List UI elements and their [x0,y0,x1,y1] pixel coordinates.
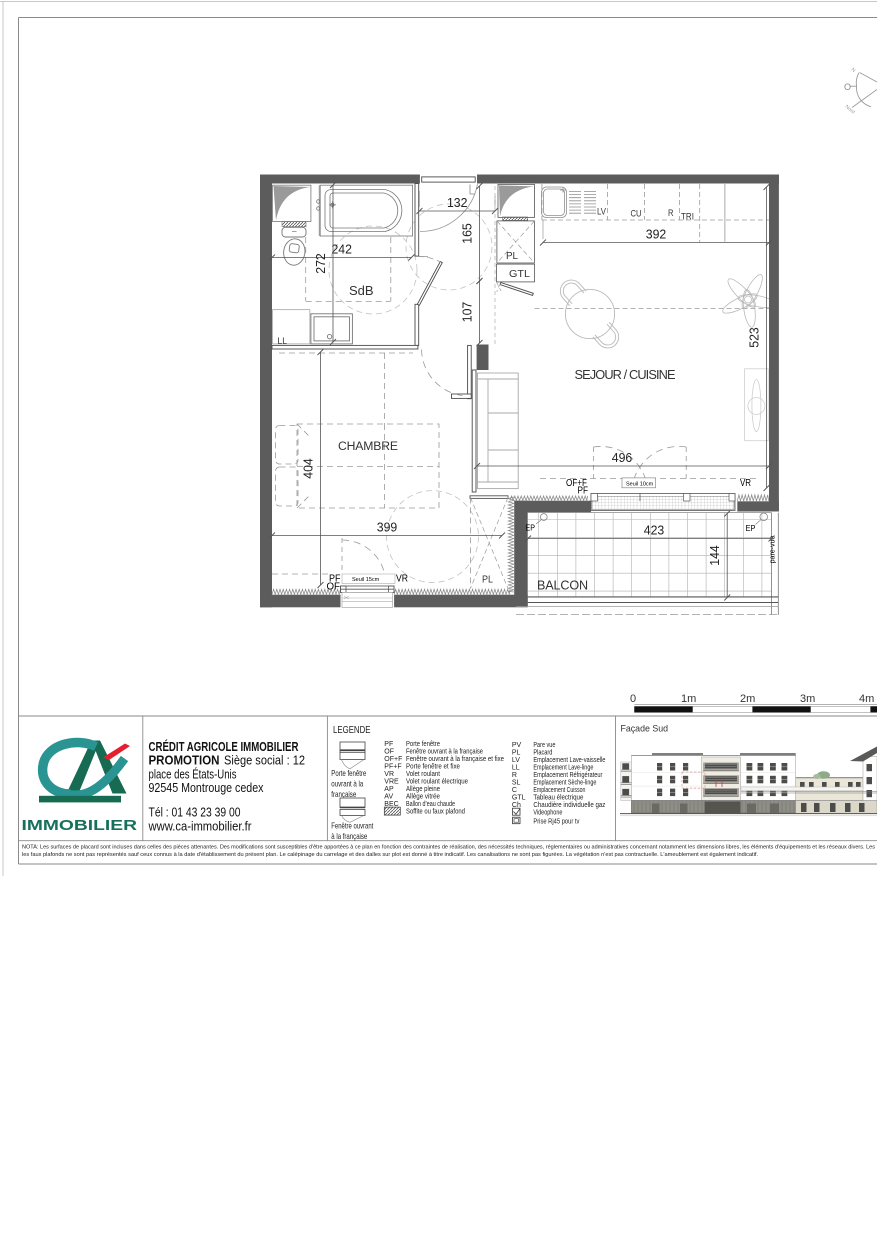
svg-text:392: 392 [646,227,667,242]
svg-text:Emplacement Lave-linge: Emplacement Lave-linge [533,765,593,772]
svg-text:VRE: VRE [384,778,399,785]
svg-text:CHAMBRE: CHAMBRE [338,439,398,453]
svg-text:SL: SL [512,780,521,787]
svg-text:OF: OF [327,581,341,593]
svg-text:EP: EP [526,523,536,533]
svg-text:TRI: TRI [681,212,694,223]
svg-text:Allège pleine: Allège pleine [406,786,440,793]
svg-text:Allège vitrée: Allège vitrée [406,793,440,800]
svg-text:R: R [668,208,674,219]
svg-text:92545 Montrouge cedex: 92545 Montrouge cedex [149,780,264,795]
svg-text:Pare vue: Pare vue [533,742,555,749]
svg-text:Soffite ou faux plafond: Soffite ou faux plafond [406,808,465,815]
svg-text:OF+F: OF+F [384,756,402,763]
svg-text:165: 165 [460,223,475,244]
svg-text:Chaudière individuelle gaz: Chaudière individuelle gaz [533,802,605,809]
svg-text:www.ca-immobilier.fr: www.ca-immobilier.fr [148,819,252,834]
svg-text:PF: PF [384,741,393,748]
svg-text:française: française [331,789,356,799]
svg-text:242: 242 [331,242,352,257]
svg-text:523: 523 [747,327,762,348]
svg-text:LL: LL [512,765,520,772]
svg-text:Façade Sud: Façade Sud [621,724,669,734]
svg-text:LEGENDE: LEGENDE [333,725,371,736]
svg-text:C: C [512,787,517,794]
svg-text:272: 272 [313,253,328,274]
svg-text:3m: 3m [800,693,815,705]
svg-text:Volet roulant: Volet roulant [406,771,440,778]
svg-text:OF: OF [384,748,394,755]
svg-text:LL: LL [278,336,288,346]
svg-text:Videophone: Videophone [533,810,562,817]
svg-text:1m: 1m [681,693,696,705]
svg-text:GTL: GTL [512,795,526,802]
svg-text:PV: PV [512,742,522,749]
svg-text:LV: LV [512,757,520,764]
svg-text:IMMOBILIER: IMMOBILIER [22,817,138,834]
svg-text:CU: CU [631,209,642,220]
svg-text:PL: PL [506,251,518,262]
svg-text:Emplacement Cuisson: Emplacement Cuisson [533,787,585,794]
svg-text:4m: 4m [859,693,874,705]
svg-text:à la française: à la française [331,831,367,841]
svg-text:O: O [844,82,851,92]
svg-text:Seuil 15cm: Seuil 15cm [352,577,380,583]
svg-text:399: 399 [377,520,398,535]
svg-text:les faux plafonds ne sont pas: les faux plafonds ne sont pas représenté… [22,852,758,858]
svg-text:SdB: SdB [349,283,374,298]
svg-text:Fenêtre ouvrant à la française: Fenêtre ouvrant à la française [406,748,483,755]
svg-text:Ballon d’eau chaude: Ballon d’eau chaude [406,801,455,808]
svg-text:AV: AV [384,793,393,800]
svg-text:404: 404 [301,458,316,479]
svg-text:144: 144 [707,545,722,566]
svg-text:107: 107 [460,302,475,323]
svg-text:132: 132 [447,195,468,210]
svg-text:423: 423 [644,523,665,538]
svg-text:Prise Rj45 pour tv: Prise Rj45 pour tv [533,819,579,826]
svg-text:Fenêtre ouvrant à la française: Fenêtre ouvrant à la française et fixe [406,756,504,763]
svg-text:SEJOUR / CUISINE: SEJOUR / CUISINE [575,367,676,382]
svg-text:Emplacement Sèche-linge: Emplacement Sèche-linge [533,780,596,787]
svg-text:Placard: Placard [533,750,552,757]
svg-text:PF: PF [578,484,589,496]
svg-text:496: 496 [612,450,633,465]
svg-text:2m: 2m [740,693,755,705]
svg-text:PL: PL [512,750,521,757]
svg-text:Seuil 10cm: Seuil 10cm [626,481,654,487]
svg-text:PL: PL [482,575,493,586]
svg-text:LV: LV [597,207,607,218]
svg-text:AP: AP [384,786,394,793]
svg-text:Volet roulant électrique: Volet roulant électrique [406,778,468,785]
svg-text:PF+F: PF+F [384,763,401,770]
svg-text:Porte fenêtre et fixe: Porte fenêtre et fixe [406,763,460,770]
svg-text:ouvrant à la: ouvrant à la [331,778,363,788]
svg-text:VR: VR [740,477,751,489]
svg-text:VR: VR [396,573,408,585]
svg-text:Emplacement Réfrigérateur: Emplacement Réfrigérateur [533,772,603,779]
svg-text:BALCON: BALCON [537,579,589,593]
svg-text:Porte fenêtre: Porte fenêtre [406,741,440,748]
svg-text:GTL: GTL [509,269,530,280]
svg-text:NOTA: Les surfaces de p: NOTA: Les surfaces de placard sont inclu… [22,845,875,851]
svg-text:R: R [512,772,517,779]
svg-text:Porte fenêtre: Porte fenêtre [331,768,366,778]
svg-text:Fenêtre ouvrant: Fenêtre ouvrant [331,821,373,831]
svg-text:Tél : 01 43 23 39 00: Tél : 01 43 23 39 00 [149,805,241,820]
svg-text:Tableau électrique: Tableau électrique [533,795,583,802]
svg-text:VR: VR [384,771,394,778]
svg-text:Emplacement Lave-vaisselle: Emplacement Lave-vaisselle [533,757,605,764]
svg-text:0: 0 [630,693,636,705]
svg-text:EP: EP [746,523,756,533]
